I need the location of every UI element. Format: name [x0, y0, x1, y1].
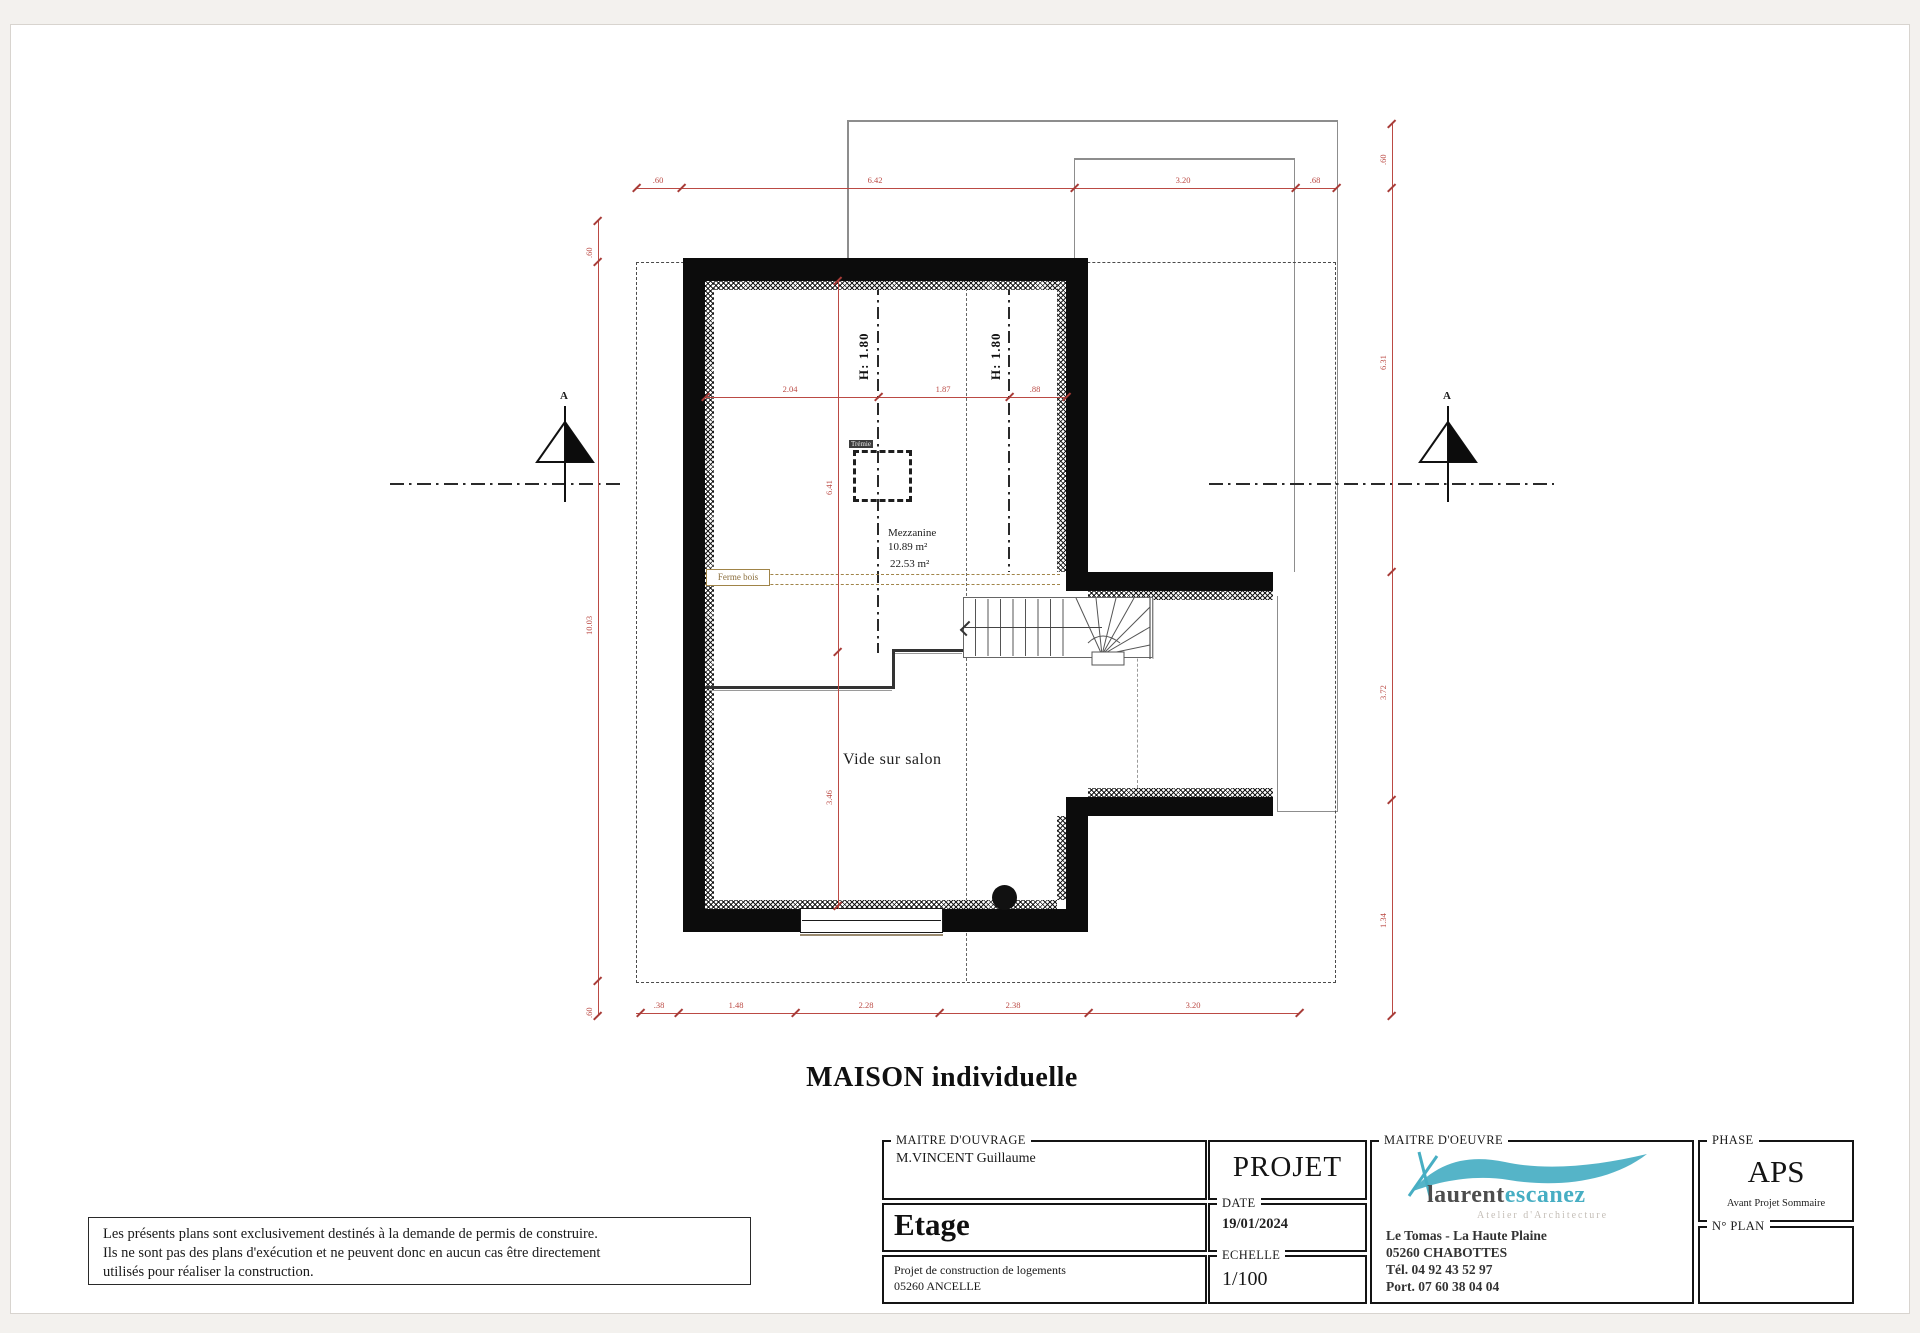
height-label-left: H: 1.80: [856, 295, 872, 380]
echelle-label: ECHELLE: [1217, 1248, 1285, 1263]
lower-floor-outline-top: [848, 120, 1338, 122]
dim-left-2: 10.03: [584, 585, 594, 635]
date-label: DATE: [1217, 1196, 1261, 1211]
dim-line-left: [598, 221, 599, 1016]
window-sill: [800, 934, 943, 936]
titleblock-phase: PHASE APS Avant Projet Sommaire: [1698, 1140, 1854, 1222]
hatch-wing-lower: [1088, 788, 1273, 797]
flue-circle: [992, 885, 1017, 910]
dim-line-bottom: [636, 1013, 1299, 1014]
dim-bottom-2: 1.48: [716, 1000, 756, 1010]
dim-inner-h-1: 2.04: [770, 384, 810, 394]
titleblock-num-plan: N° PLAN: [1698, 1226, 1854, 1304]
maitre-ouvrage-value: M.VINCENT Guillaume: [896, 1151, 1036, 1167]
wall-right-lower: [1066, 797, 1088, 932]
phase-sub: Avant Projet Sommaire: [1700, 1198, 1852, 1209]
tremie-square: [853, 450, 912, 502]
dim-inner-v-2: 3.46: [824, 765, 834, 805]
dim-inner-h-3: .88: [1022, 384, 1048, 394]
phase-label: PHASE: [1707, 1133, 1759, 1148]
dim-bottom-4: 2.38: [993, 1000, 1033, 1010]
dim-right-4: 1.34: [1378, 888, 1388, 928]
stair-winder: [1062, 593, 1158, 671]
phase-value: APS: [1700, 1154, 1852, 1190]
mezzanine-edge-b: [705, 686, 893, 689]
dim-right-1: .60: [1378, 135, 1388, 165]
architect-addr-3: Tél. 04 92 43 52 97: [1386, 1262, 1493, 1278]
mezzanine-area-label: 10.89 m²: [888, 541, 927, 553]
window-center-line: [802, 920, 941, 921]
project-desc-line1: Projet de construction de logements: [894, 1263, 1066, 1278]
section-line-right: [1209, 483, 1554, 485]
titleblock-drawing-name: Etage: [882, 1203, 1207, 1252]
titleblock-projet: PROJET: [1208, 1140, 1367, 1200]
architect-logo-sub: Atelier d'Architecture: [1477, 1210, 1608, 1221]
mezzanine-label: Mezzanine: [888, 527, 936, 539]
ferme-bois-tag: Ferme bois: [706, 569, 770, 586]
vide-sur-salon-label: Vide sur salon: [843, 751, 941, 769]
section-marker-left: [525, 400, 605, 510]
disclaimer-line-2: Ils ne sont pas des plans d'exécution et…: [103, 1244, 750, 1263]
section-letter-right: A: [1443, 390, 1451, 402]
lower-floor-outline-right: [1337, 120, 1339, 812]
drawing-canvas: Ferme bois Trémie H: 1.80 H: 1.80 Mezzan…: [0, 0, 1920, 1333]
hatch-left: [705, 281, 714, 900]
dim-left-3: .60: [584, 988, 594, 1018]
ferme-bois-label: Ferme bois: [718, 572, 758, 582]
titleblock-echelle: ECHELLE 1/100: [1208, 1255, 1367, 1304]
logo-name-part1: laurent: [1427, 1182, 1505, 1208]
wall-wing-upper: [1066, 572, 1273, 591]
hatch-right-lower: [1057, 816, 1066, 900]
maitre-oeuvre-label: MAITRE D'OEUVRE: [1379, 1133, 1508, 1148]
wall-wing-lower: [1066, 797, 1273, 816]
disclaimer-line-1: Les présents plans sont exclusivement de…: [103, 1225, 750, 1244]
hatch-right-upper: [1057, 281, 1066, 572]
architect-logo-name: laurentescanez: [1427, 1182, 1667, 1209]
dim-top-2: 6.42: [855, 175, 895, 185]
dim-bottom-5: 3.20: [1173, 1000, 1213, 1010]
dim-inner-h-2: 1.87: [923, 384, 963, 394]
projet-title: PROJET: [1210, 1151, 1365, 1184]
dim-line-inner-h: [705, 397, 1066, 398]
echelle-value: 1/100: [1222, 1268, 1268, 1291]
disclaimer-line-3: utilisés pour réaliser la construction.: [103, 1263, 750, 1282]
section-letter-left: A: [560, 390, 568, 402]
section-marker-right: [1408, 400, 1488, 510]
hatch-top: [705, 281, 1057, 290]
titleblock-project-desc: Projet de construction de logements 0526…: [882, 1255, 1207, 1304]
wall-left: [683, 258, 705, 932]
lower-floor-outline-left: [847, 120, 849, 262]
drawing-name: Etage: [894, 1207, 970, 1243]
dim-top-3: 3.20: [1163, 175, 1203, 185]
dim-bottom-3: 2.28: [846, 1000, 886, 1010]
total-area-label: 22.53 m²: [890, 558, 929, 570]
height-label-right: H: 1.80: [988, 295, 1004, 380]
dim-top-1: .60: [645, 175, 671, 185]
dim-right-2: 6.31: [1378, 330, 1388, 370]
project-desc-line2: 05260 ANCELLE: [894, 1279, 981, 1294]
stair-handrail: [965, 627, 1102, 628]
dim-top-4: .68: [1300, 175, 1330, 185]
dim-line-inner-v: [838, 281, 839, 909]
lower-floor-inner-left: [1074, 158, 1076, 258]
dim-bottom-1: .38: [646, 1000, 672, 1010]
plan-title: MAISON individuelle: [636, 1062, 1248, 1094]
dim-line-top: [636, 188, 1336, 189]
dim-right-3: 3.72: [1378, 660, 1388, 700]
titleblock-date: DATE 19/01/2024: [1208, 1203, 1367, 1252]
lower-floor-inner-top: [1074, 158, 1295, 160]
architect-addr-1: Le Tomas - La Haute Plaine: [1386, 1228, 1547, 1244]
dim-inner-v-1: 6.41: [824, 455, 834, 495]
roof-ridge-line-right: [1008, 283, 1010, 572]
date-value: 19/01/2024: [1222, 1216, 1288, 1233]
dim-left-1: .60: [584, 228, 594, 258]
num-plan-label: N° PLAN: [1707, 1219, 1770, 1234]
logo-name-part2: escanez: [1505, 1182, 1586, 1208]
titleblock-maitre-oeuvre: MAITRE D'OEUVRE laurentescanez Atelier d…: [1370, 1140, 1694, 1304]
wall-top: [683, 258, 1088, 281]
disclaimer-box: Les présents plans sont exclusivement de…: [88, 1217, 751, 1285]
tremie-label: Trémie: [849, 440, 873, 448]
maitre-ouvrage-label: MAITRE D'OUVRAGE: [891, 1133, 1031, 1148]
architect-addr-4: Port. 07 60 38 04 04: [1386, 1279, 1499, 1295]
wall-right-upper: [1066, 258, 1088, 572]
architect-addr-2: 05260 CHABOTTES: [1386, 1245, 1507, 1261]
mezzanine-edge-a: [893, 649, 963, 652]
mezzanine-edge-v: [892, 649, 895, 689]
titleblock-maitre-ouvrage: MAITRE D'OUVRAGE M.VINCENT Guillaume: [882, 1140, 1207, 1200]
